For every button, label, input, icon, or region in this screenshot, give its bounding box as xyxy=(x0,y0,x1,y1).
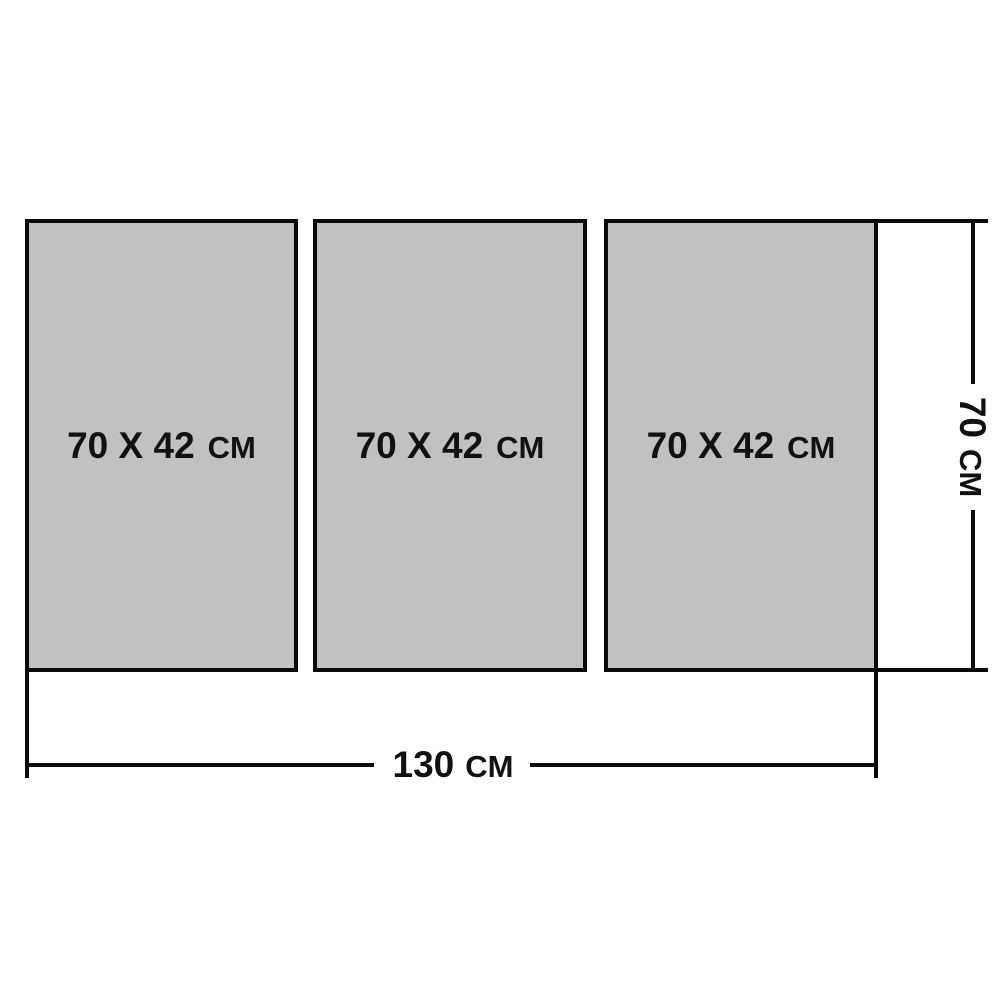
panel-3: 70 X 42 CM xyxy=(604,219,878,672)
panel-2: 70 X 42 CM xyxy=(313,219,587,672)
panel-size-unit: CM xyxy=(208,430,256,466)
width-dim-line-left xyxy=(25,763,374,767)
panel-size-unit: CM xyxy=(496,430,544,466)
width-dim-unit: CM xyxy=(465,749,513,785)
height-dim-label: 70 CM xyxy=(951,397,993,497)
size-diagram: 70 X 42 CM 70 X 42 CM 70 X 42 CM 70 CM 1… xyxy=(0,0,1000,1000)
panel-size-value: 70 X 42 xyxy=(67,425,195,467)
panel-2-size-label: 70 X 42 CM xyxy=(356,425,545,467)
panel-size-value: 70 X 42 xyxy=(647,425,775,467)
panel-1-size-label: 70 X 42 CM xyxy=(67,425,256,467)
height-dim-line-lower xyxy=(971,510,975,670)
panel-size-value: 70 X 42 xyxy=(356,425,484,467)
height-dim-value: 70 xyxy=(951,397,993,438)
width-dim-value: 130 xyxy=(393,744,455,786)
width-dim-label: 130 CM xyxy=(393,744,514,786)
width-dim-line-right xyxy=(530,763,878,767)
height-dim-unit: CM xyxy=(952,449,988,497)
panel-size-unit: CM xyxy=(787,430,835,466)
height-dim-line-upper xyxy=(971,222,975,384)
panel-1: 70 X 42 CM xyxy=(25,219,298,672)
panel-3-size-label: 70 X 42 CM xyxy=(647,425,836,467)
